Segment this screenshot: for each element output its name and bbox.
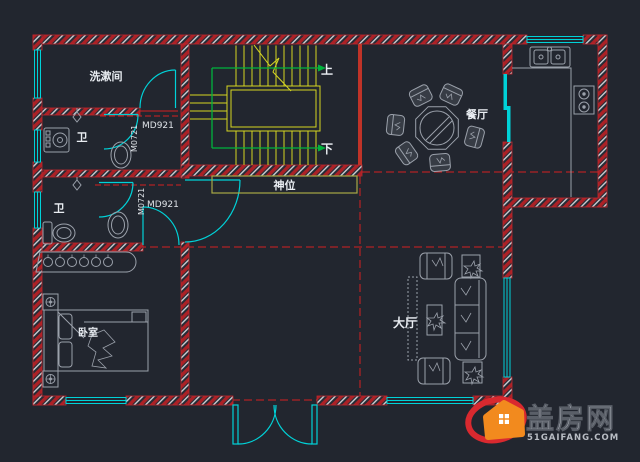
door-bedroom [143,207,179,245]
wardrobe [36,252,136,272]
wall-stair-partition [358,44,362,165]
floorplan-drawing: 洗漱间 卫 卫 餐厅 神位 大厅 卧室 上 下 M0721 MD921 M072… [0,0,640,462]
armchair-top [420,253,452,279]
label-washroom: 洗漱间 [90,69,123,83]
wall-stair-bottom [181,165,362,176]
door-tag-lower-m: M0721 [137,188,146,215]
wall-kitchen-right [598,35,607,207]
label-stairs-up: 上 [321,62,333,77]
wall-right-seg2 [503,142,512,198]
stair-route [212,65,326,152]
toilet-fixture [43,222,75,244]
sofa [455,278,486,360]
kitchen-counter [512,68,571,197]
label-toilet-lower: 卫 [54,202,65,215]
wall-bottom-seg2 [126,396,233,405]
door-kitchen-slider [504,74,511,142]
stair-landing [227,86,320,131]
wall-left-seg2 [33,98,42,130]
windows [35,37,584,404]
label-stairs-down: 下 [321,142,333,156]
nightstand-top [43,294,58,310]
chair [386,114,405,136]
door-washroom [140,70,176,108]
label-dining: 餐厅 [465,107,488,121]
coffee-table [427,305,445,335]
chair [394,140,419,166]
wall-left-seg4 [33,228,42,405]
side-table-top [462,255,482,278]
wall-right-seg3 [503,207,512,278]
wall-left-seg1 [33,35,42,50]
wall-kitchen-bottom [503,198,607,207]
window-livingroom-right [504,278,510,377]
wall-toilet-divider [42,170,181,177]
wash-basin-lower [108,212,128,238]
wall-bottom-seg3 [317,396,387,405]
label-shrine: 神位 [274,178,296,192]
wall-bedroom-top [42,243,143,251]
wall-bedroom-right [181,242,189,405]
nightstand-bottom [43,371,58,387]
wall-bottom-seg1 [33,396,66,405]
chair [408,83,434,107]
window-bedroom-bottom [66,398,126,404]
door-tag-lower-md: MD921 [147,200,179,210]
chair [429,153,450,172]
stove [574,86,594,114]
wash-basin-upper [111,142,131,168]
watermark-logo: 盖房网 51GAIFANG.COM [464,395,619,446]
window-left-washroom [35,50,41,98]
wall-left-seg3 [33,162,42,192]
label-bedroom: 卧室 [78,326,98,339]
window-kitchen-top [527,37,583,43]
wall-top-left [33,35,527,44]
wall-stair-left [181,44,189,172]
stair-treads [190,45,320,165]
chair [439,83,464,107]
logo-domain: 51GAIFANG.COM [527,433,619,443]
door-tag-upper-md: MD921 [142,121,174,131]
label-hall: 大厅 [393,315,417,330]
dining-table [416,107,459,150]
dining-chairs [386,83,485,172]
staircase [190,45,326,165]
wall-right-seg1 [503,44,512,74]
window-left-toilet-lower [35,192,41,228]
floorplan-canvas: 洗漱间 卫 卫 餐厅 神位 大厅 卧室 上 下 M0721 MD921 M072… [0,0,640,462]
washing-machine [44,128,69,152]
side-table-bottom [463,362,483,384]
window-livingroom-bottom [387,398,473,404]
door-main-entrance [233,405,317,444]
door-tags: M0721 MD921 M0721 MD921 [130,121,179,215]
bed [44,310,148,371]
plumbing-symbol-lower [73,177,81,190]
label-toilet-upper: 卫 [77,131,88,144]
armchair-bottom [418,358,450,384]
kitchen-sink [530,47,570,67]
door-tag-upper-m: M0721 [130,125,139,152]
logo-title: 盖房网 [526,402,616,435]
chair [464,125,486,149]
window-left-toilet-upper [35,130,41,162]
